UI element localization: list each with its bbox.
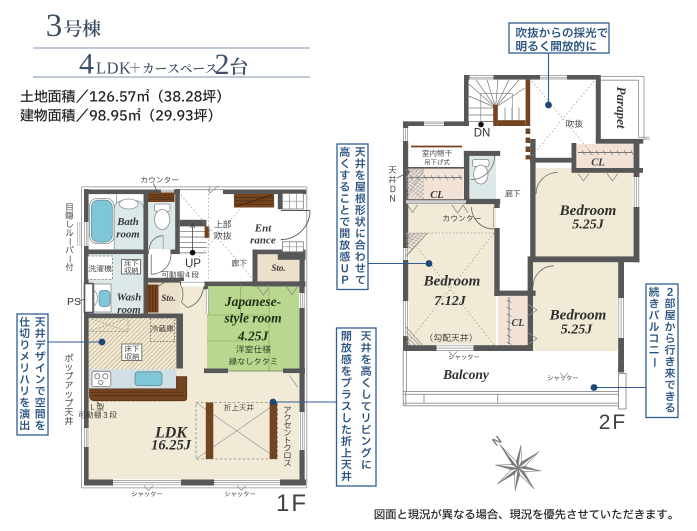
svg-text:PS: PS bbox=[67, 296, 81, 308]
svg-text:4: 4 bbox=[79, 48, 94, 81]
svg-text:Parapet: Parapet bbox=[614, 87, 629, 129]
svg-text:LDK: LDK bbox=[96, 59, 131, 78]
svg-text:room: room bbox=[117, 304, 140, 316]
svg-text:Sto.: Sto. bbox=[161, 293, 175, 303]
svg-text:16.25J: 16.25J bbox=[151, 438, 192, 454]
svg-text:CL: CL bbox=[591, 158, 604, 169]
svg-text:3: 3 bbox=[46, 8, 63, 44]
svg-text:room: room bbox=[116, 229, 139, 241]
svg-text:CL: CL bbox=[512, 318, 525, 329]
svg-text:UP: UP bbox=[185, 258, 201, 270]
svg-text:Wash: Wash bbox=[117, 292, 141, 304]
svg-text:CL: CL bbox=[430, 190, 443, 201]
svg-text:2: 2 bbox=[215, 48, 230, 81]
svg-text:1F: 1F bbox=[276, 490, 308, 517]
svg-text:rance: rance bbox=[250, 235, 276, 247]
svg-text:2F: 2F bbox=[599, 411, 628, 434]
svg-text:4.25J: 4.25J bbox=[237, 329, 270, 344]
svg-text:Bedroom: Bedroom bbox=[423, 274, 481, 290]
svg-text:style room: style room bbox=[223, 311, 281, 326]
svg-text:Japanese-: Japanese- bbox=[224, 294, 282, 309]
svg-text:5.25J: 5.25J bbox=[572, 218, 605, 233]
svg-text:DN: DN bbox=[474, 128, 491, 140]
svg-text:7.12J: 7.12J bbox=[434, 294, 467, 309]
svg-text:5.25J: 5.25J bbox=[561, 323, 594, 338]
svg-text:Balcony: Balcony bbox=[442, 367, 490, 382]
svg-text:Ent: Ent bbox=[254, 223, 272, 235]
svg-text:Bath: Bath bbox=[116, 216, 139, 228]
svg-text:Sto.: Sto. bbox=[271, 263, 285, 273]
svg-text:Bedroom: Bedroom bbox=[549, 308, 607, 324]
